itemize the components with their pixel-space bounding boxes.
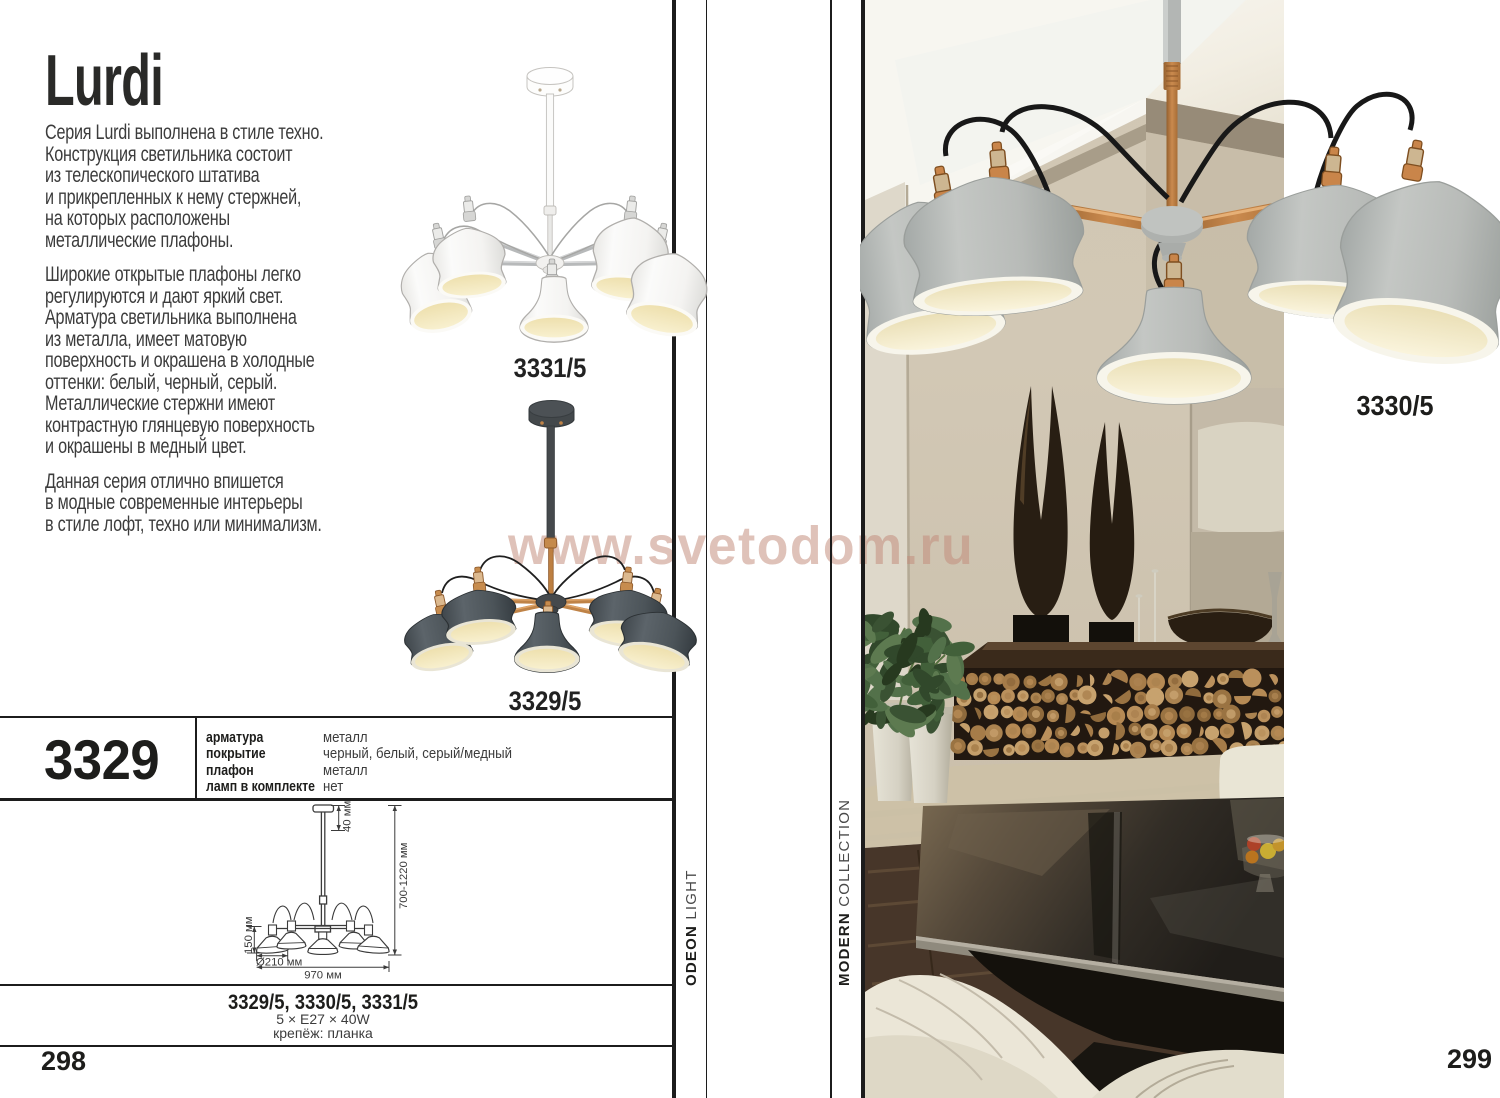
svg-text:970 мм: 970 мм <box>304 970 342 982</box>
svg-text:150 мм: 150 мм <box>243 916 255 954</box>
svg-text:Ø210 мм: Ø210 мм <box>256 957 302 969</box>
svg-text:40 мм: 40 мм <box>342 801 354 832</box>
svg-text:700-1220 мм: 700-1220 мм <box>398 843 410 909</box>
